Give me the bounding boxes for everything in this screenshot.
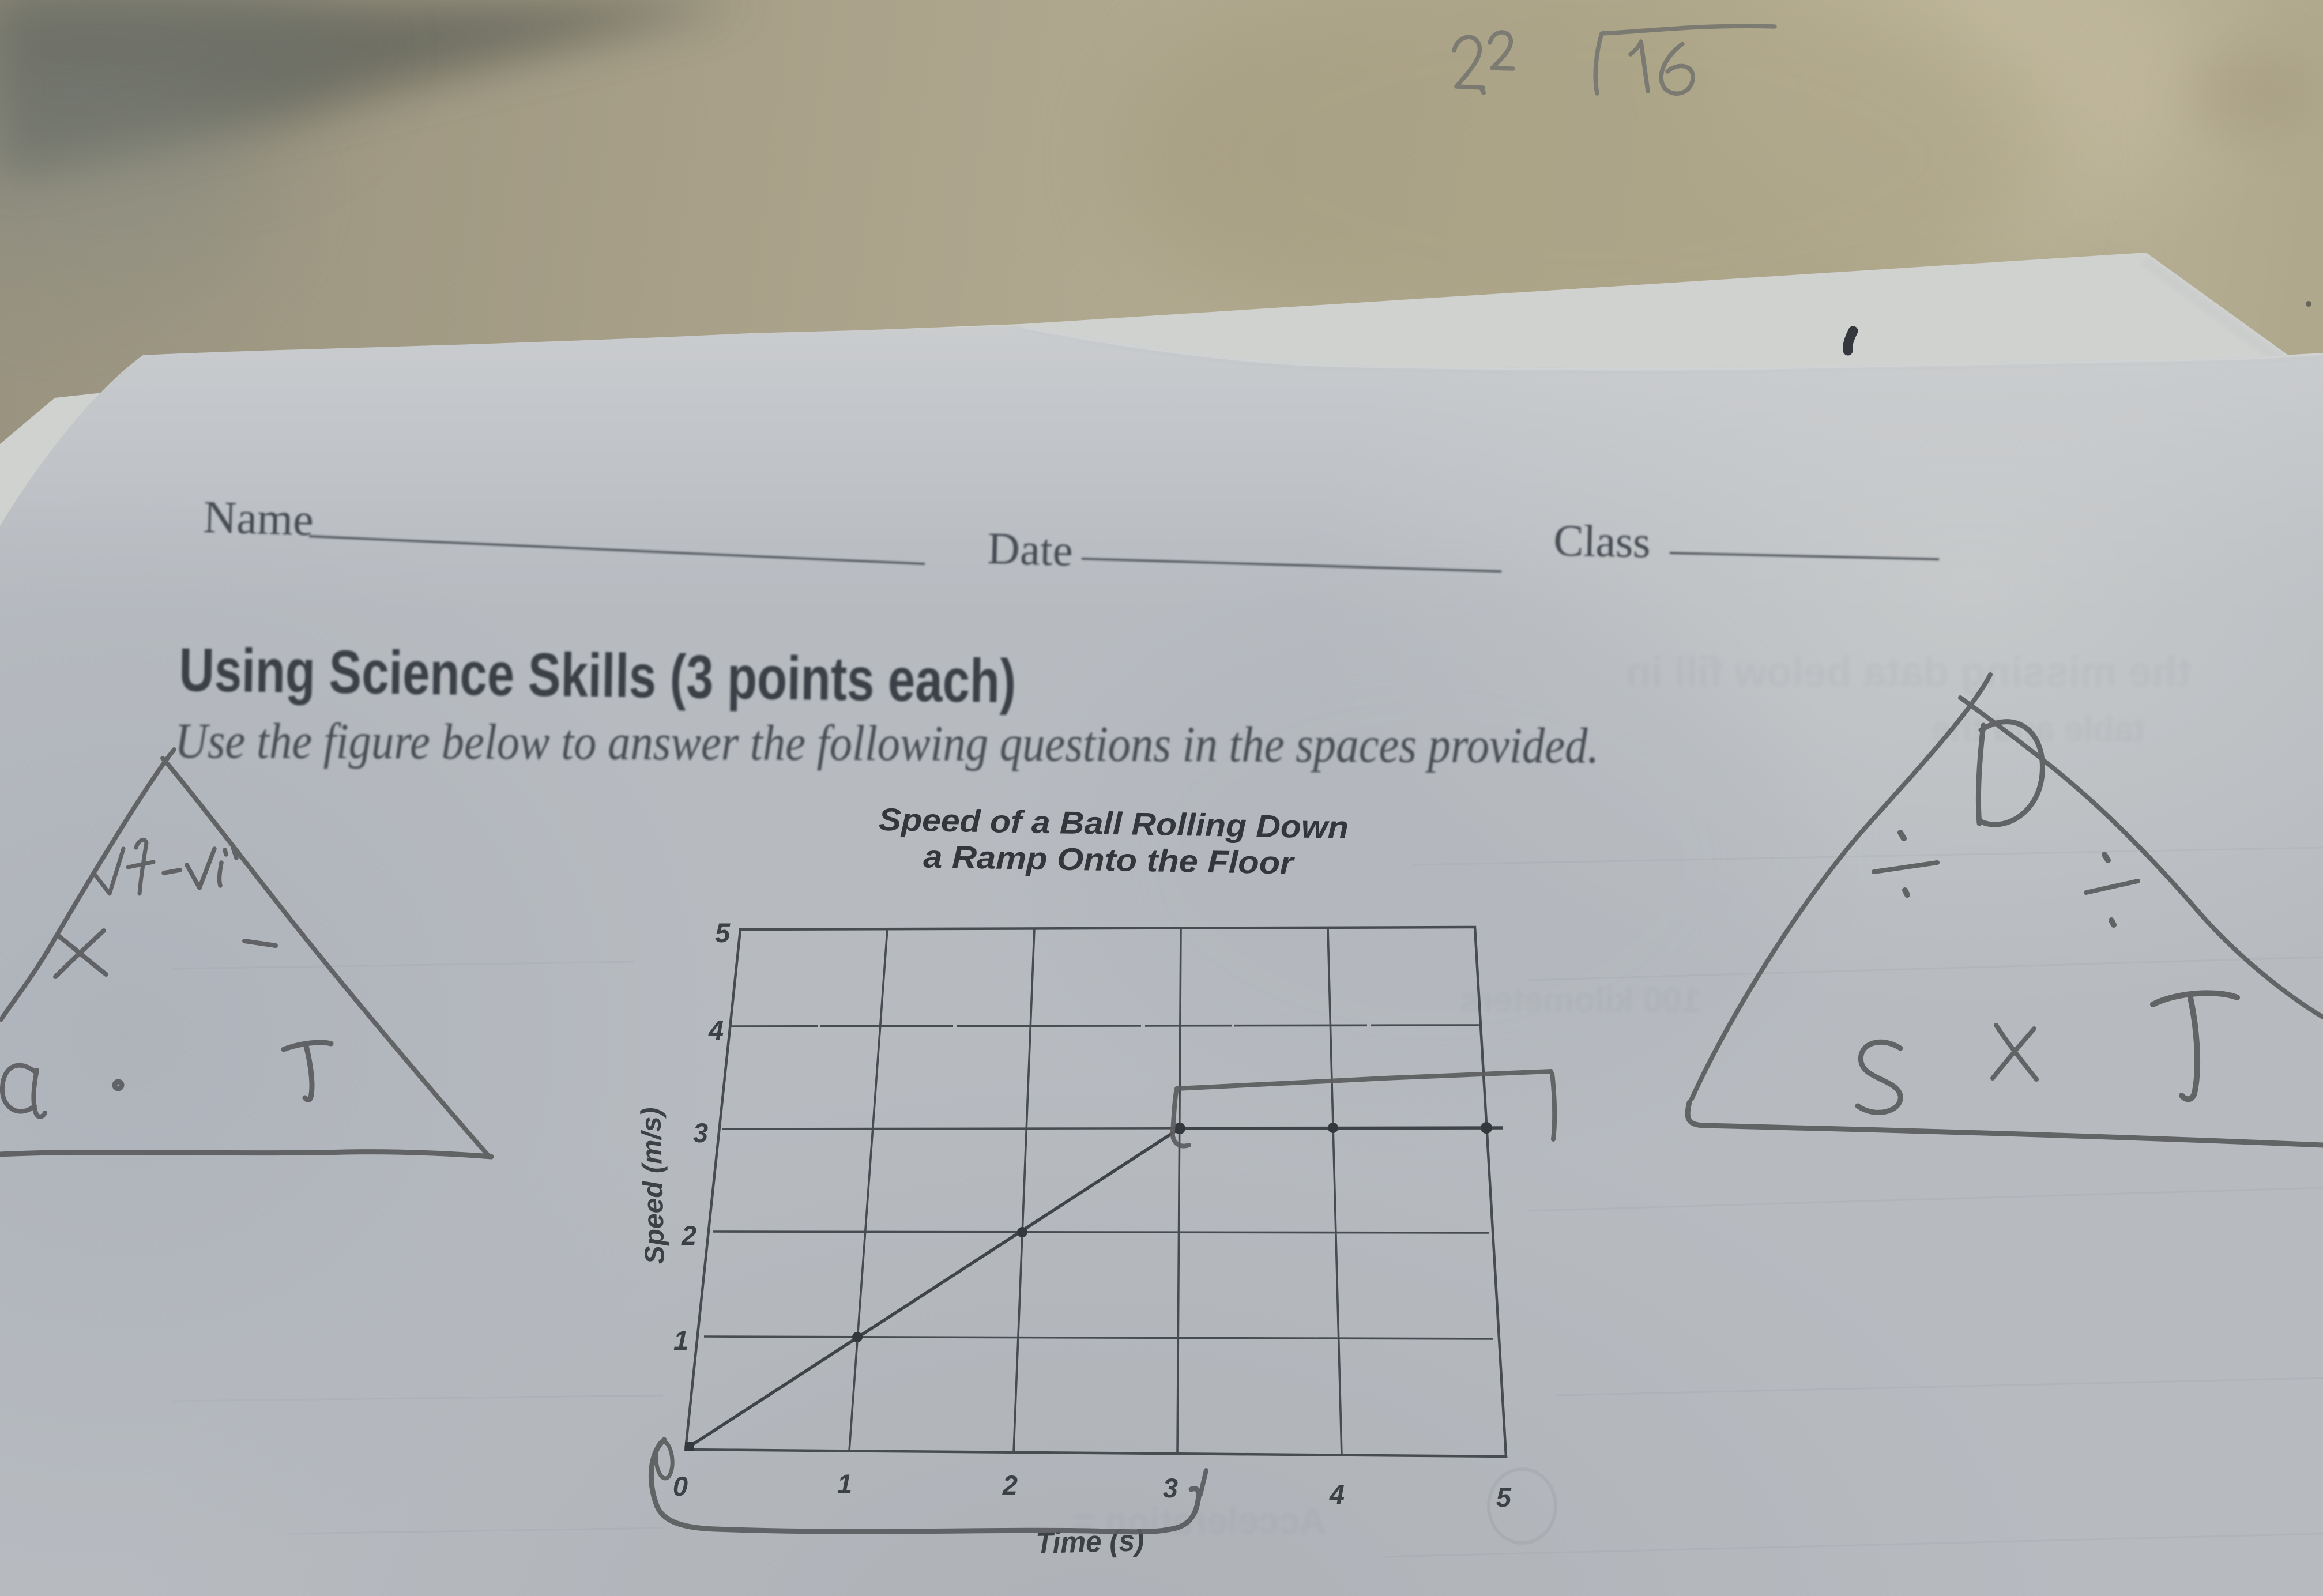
svg-text:Acceleration =: Acceleration = (1073, 1500, 1326, 1542)
svg-text:Date: Date (987, 523, 1074, 575)
svg-text:the missing data below fill in: the missing data below fill in (1626, 649, 2191, 695)
svg-text:table and the: table and the (1932, 710, 2145, 748)
svg-text:4: 4 (1329, 1479, 1345, 1510)
svg-text:Use the figure below to answer: Use the figure below to answer the follo… (175, 713, 1599, 774)
svg-text:4: 4 (708, 1015, 724, 1045)
svg-text:a Ramp Onto the Floor: a Ramp Onto the Floor (923, 838, 1296, 880)
svg-text:Name: Name (202, 492, 314, 545)
svg-text:Speed (m/s): Speed (m/s) (636, 1107, 671, 1264)
svg-text:3: 3 (1163, 1473, 1178, 1503)
svg-text:2: 2 (681, 1220, 696, 1251)
svg-text:1: 1 (673, 1325, 688, 1356)
svg-text:2: 2 (1002, 1470, 1018, 1500)
svg-text:1: 1 (837, 1469, 852, 1499)
svg-text:Using Science Skills (3 points: Using Science Skills (3 points each) (179, 635, 1017, 716)
svg-text:5: 5 (715, 917, 731, 948)
svg-text:100 kilometers: 100 kilometers (1460, 981, 1701, 1019)
svg-text:Class: Class (1553, 515, 1651, 567)
svg-text:0: 0 (673, 1471, 688, 1501)
svg-text:3: 3 (693, 1117, 708, 1148)
svg-text:5: 5 (1496, 1482, 1512, 1512)
